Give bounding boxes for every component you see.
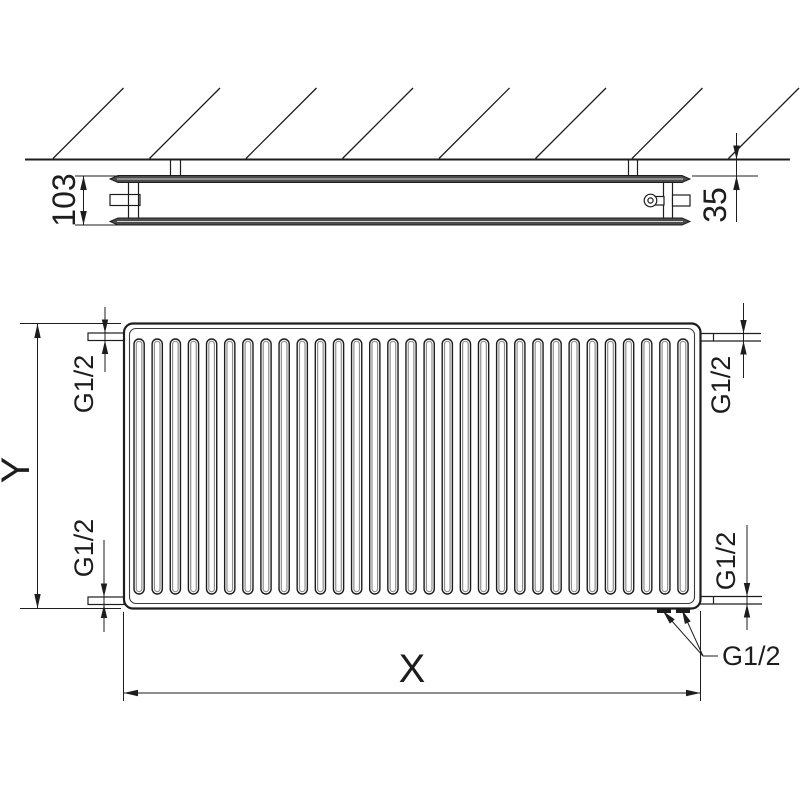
arrow-down-icon xyxy=(744,583,750,597)
fin-channel xyxy=(388,339,398,594)
fin-channel xyxy=(315,339,325,594)
thread-label-bottom-left: G1/2 xyxy=(69,519,99,578)
fin-channel xyxy=(333,339,343,594)
pipe-stub xyxy=(88,597,124,605)
wall-hatch-line xyxy=(343,88,414,159)
fin-channel xyxy=(225,339,235,594)
fin-channel xyxy=(678,339,688,594)
fin-channel xyxy=(569,339,579,594)
height-dimension-label: Y xyxy=(0,457,38,484)
fin-channel xyxy=(605,339,615,594)
fin-channel xyxy=(261,339,271,594)
fin-channel xyxy=(587,339,597,594)
wall-hatch-line xyxy=(53,88,124,159)
thread-label-top-right: G1/2 xyxy=(706,356,736,415)
side-view: 103 35 xyxy=(25,88,799,227)
right-bracket xyxy=(629,160,691,219)
fin-channel xyxy=(152,339,162,594)
arrow-up-icon xyxy=(740,341,746,355)
fin-channel xyxy=(533,339,543,594)
fin-channel xyxy=(497,339,507,594)
drawing-canvas: 103 35 G1/2 xyxy=(0,0,800,800)
fin-channel xyxy=(370,339,380,594)
arrow-up-icon xyxy=(34,324,40,339)
arrow-down-icon xyxy=(740,320,746,334)
arrow-left-icon xyxy=(124,690,139,696)
fin-channel xyxy=(642,339,652,594)
wall-hatch-line xyxy=(439,88,510,159)
pipe-stub xyxy=(88,333,124,341)
fin-channel xyxy=(279,339,289,594)
wall-hatch-line xyxy=(632,88,703,159)
fin-channel xyxy=(134,339,144,594)
thread-label-bottom-right: G1/2 xyxy=(711,532,741,591)
left-bracket xyxy=(110,160,181,219)
wall-hatch-line xyxy=(536,88,607,159)
wall-hatching xyxy=(53,88,799,159)
front-view: G1/2 G1/2 G1/2 G1/2 xyxy=(0,303,781,701)
fin-channel xyxy=(207,339,217,594)
thread-label-bottom-ports: G1/2 xyxy=(722,641,781,671)
fin-channel xyxy=(460,339,470,594)
bracket-screw-head-icon xyxy=(644,194,657,207)
fin-channel xyxy=(660,339,670,594)
fin-channel xyxy=(188,339,198,594)
fin-channel xyxy=(624,339,634,594)
arrow-down-icon xyxy=(102,320,108,334)
fin-channel xyxy=(243,339,253,594)
arrow-up-icon xyxy=(744,604,750,618)
arrow-up-icon xyxy=(102,341,108,355)
fin-channel xyxy=(406,339,416,594)
depth-dimension-label: 103 xyxy=(46,173,82,226)
thread-label-top-left: G1/2 xyxy=(69,355,99,414)
arrow-right-icon xyxy=(686,690,701,696)
fin-pattern xyxy=(134,339,688,594)
width-dimension-label: X xyxy=(399,647,426,691)
arrow-down-icon xyxy=(101,584,107,598)
fin-channel xyxy=(170,339,180,594)
fin-channel xyxy=(297,339,307,594)
left-bracket-hook xyxy=(110,195,140,206)
wall-hatch-line xyxy=(246,88,317,159)
fin-channel xyxy=(515,339,525,594)
right-bracket-tab xyxy=(673,195,691,206)
arrow-up-icon xyxy=(733,176,740,190)
bottom-ports-leader xyxy=(663,610,718,656)
wall-gap-dimension-label: 35 xyxy=(697,187,733,223)
fin-channel xyxy=(424,339,434,594)
arrow-up-icon xyxy=(101,605,107,619)
fin-channel xyxy=(551,339,561,594)
fin-channel xyxy=(352,339,362,594)
fin-channel xyxy=(442,339,452,594)
radiator-technical-drawing: 103 35 G1/2 xyxy=(0,0,800,800)
arrow-down-icon xyxy=(34,594,40,609)
fin-channel xyxy=(478,339,488,594)
wall-hatch-line xyxy=(150,88,221,159)
